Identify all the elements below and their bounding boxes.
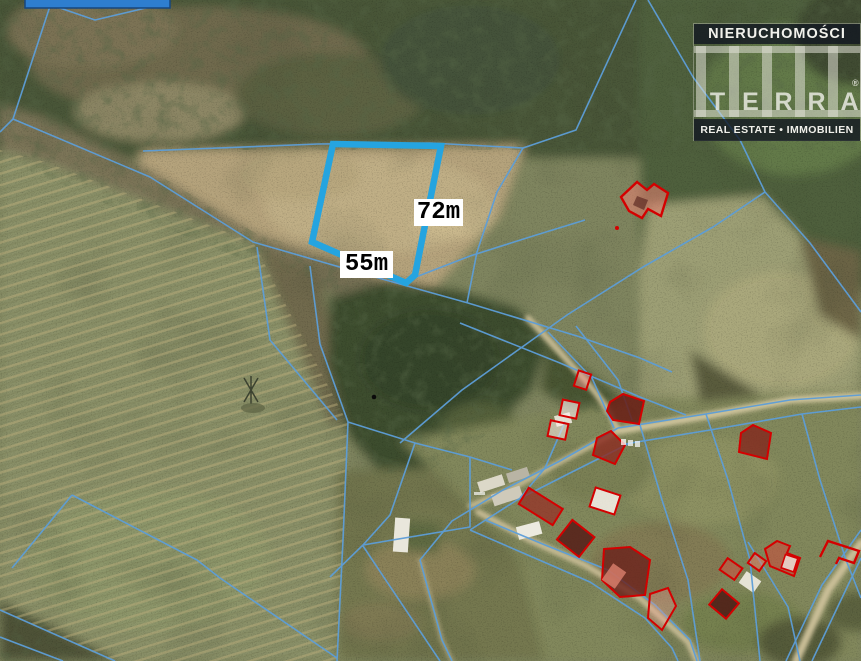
logo-frame-bar — [762, 46, 772, 117]
aerial-map: 72m 55m NIERUCHOMOŚCI T E R R A ® REAL E… — [0, 0, 861, 661]
brand-letter: R — [805, 90, 828, 115]
registered-mark-icon: ® — [852, 78, 859, 88]
point-marker-dot — [372, 395, 377, 400]
logo-frame-bar — [729, 46, 739, 117]
brand-letter: E — [739, 90, 762, 115]
watermark-line1: NIERUCHOMOŚCI — [708, 26, 846, 42]
map-tag-clipped — [25, 0, 170, 8]
brand-letter: T — [706, 90, 729, 115]
brand-letter: A — [838, 90, 861, 115]
watermark-top-bar: NIERUCHOMOŚCI — [694, 24, 860, 44]
watermark-brand-row: T E R R A ® — [694, 44, 860, 119]
dimension-label-55m: 55m — [340, 251, 393, 278]
watermark-line3: REAL ESTATE • IMMOBILIEN — [700, 124, 853, 136]
brand-letter: R — [772, 90, 795, 115]
logo-frame-bar — [696, 46, 706, 117]
logo-frame-bar — [828, 46, 838, 117]
watermark-bottom-bar: REAL ESTATE • IMMOBILIEN — [694, 119, 860, 141]
dimension-label-72m: 72m — [414, 199, 463, 226]
logo-frame-bar — [795, 46, 805, 117]
terra-watermark-logo: NIERUCHOMOŚCI T E R R A ® REAL ESTATE • … — [693, 23, 861, 141]
